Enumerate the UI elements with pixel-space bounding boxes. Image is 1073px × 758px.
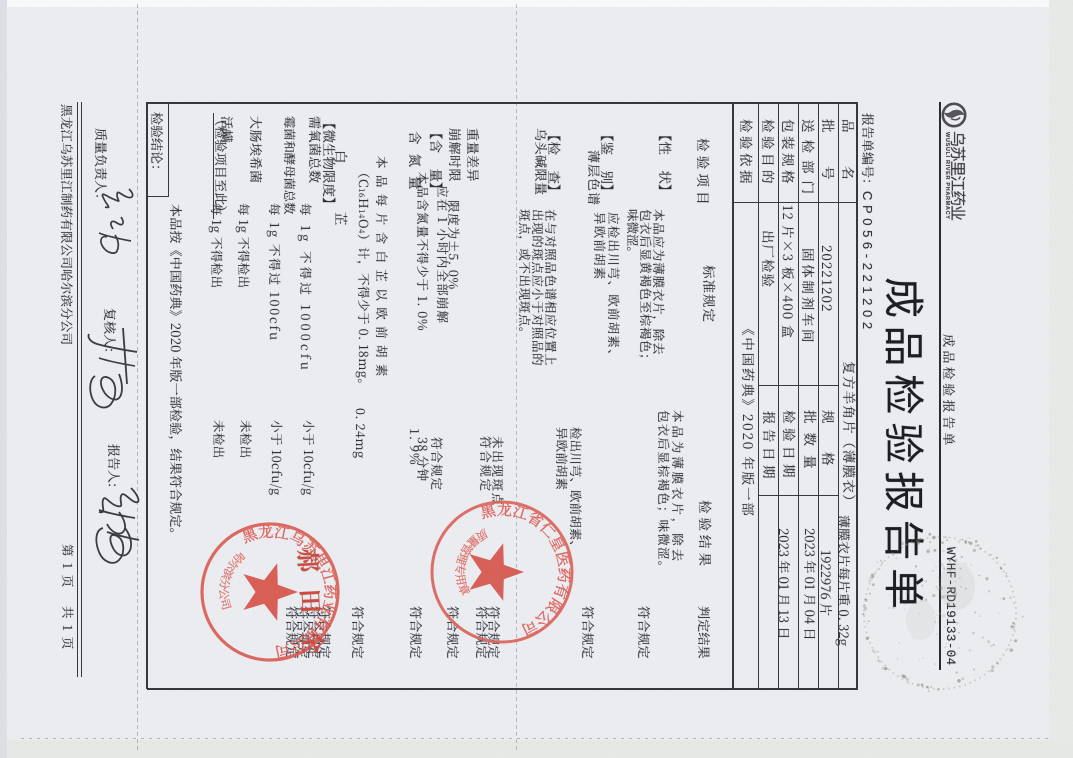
svg-text:哈尔滨分公司: 哈尔滨分公司 (216, 548, 249, 611)
